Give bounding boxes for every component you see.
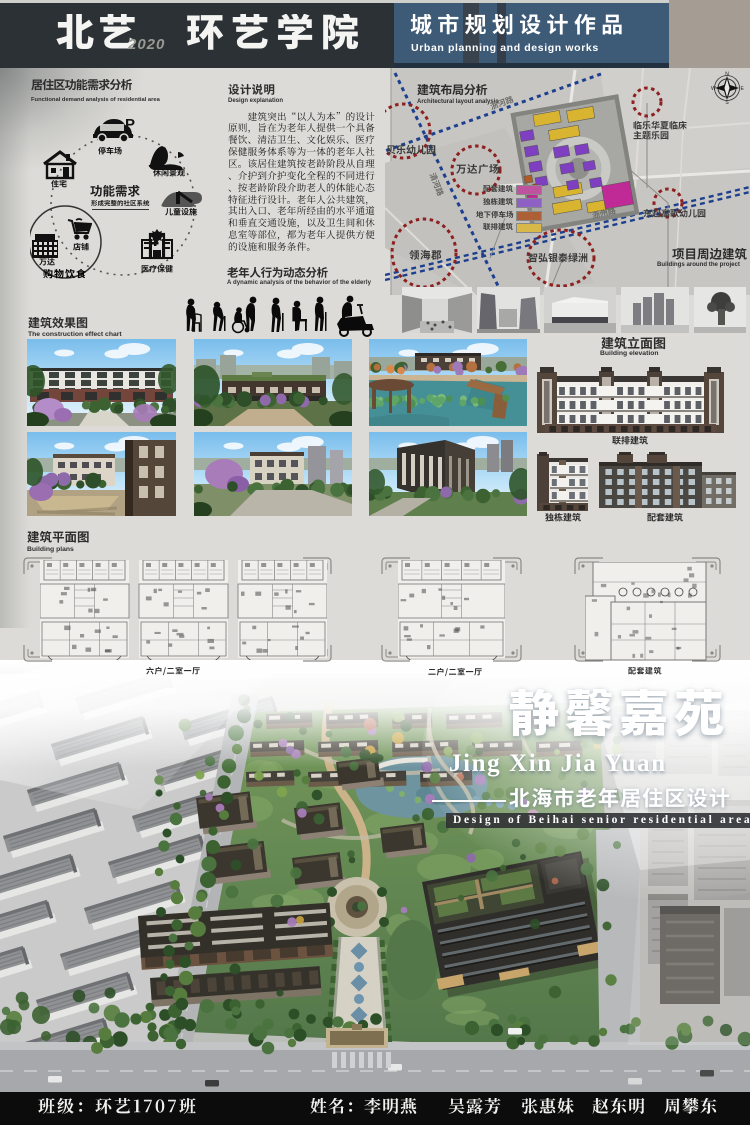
svg-text:N: N xyxy=(725,72,729,78)
svg-text:W: W xyxy=(711,86,716,92)
svg-text:P: P xyxy=(125,116,135,133)
